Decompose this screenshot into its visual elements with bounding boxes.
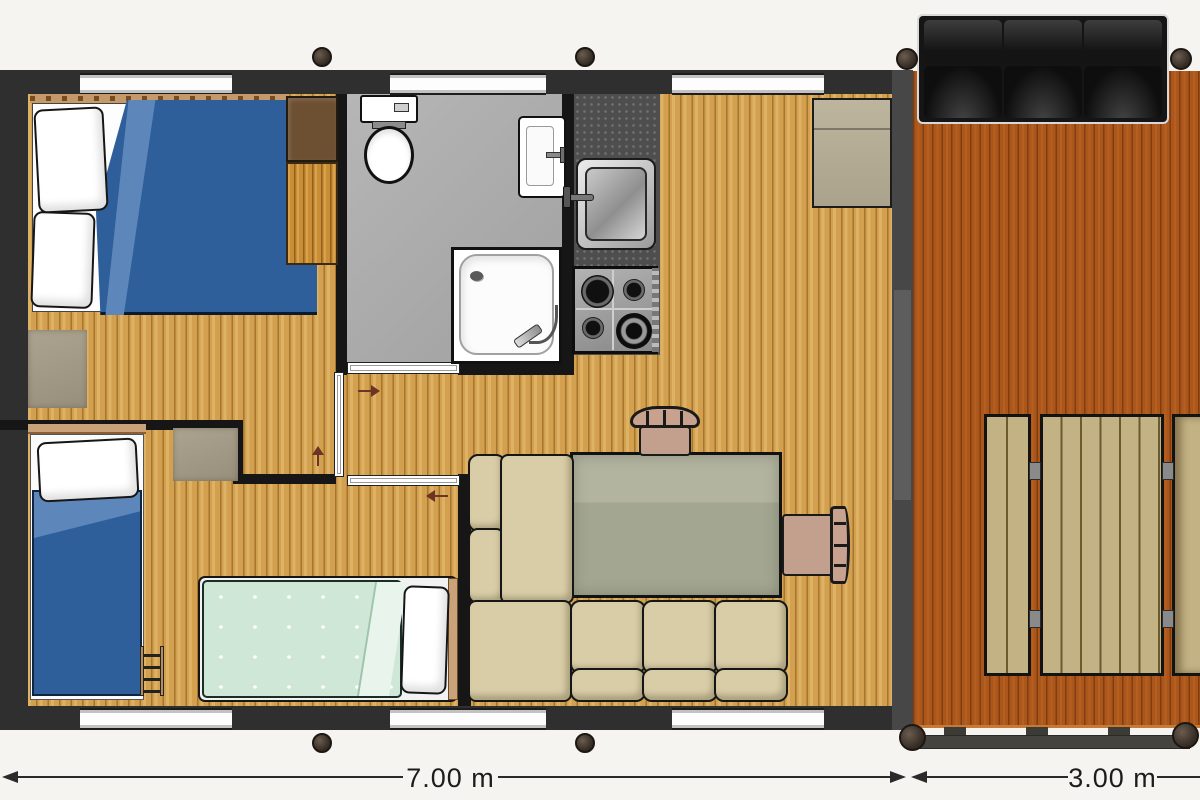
wall-left: [0, 70, 28, 730]
bathroom-wall-bottom: [458, 363, 574, 375]
bedside-rug: [173, 428, 238, 481]
single-bed: [28, 424, 146, 702]
floorplan-canvas: 7.00 m 3.00 m: [0, 0, 1200, 800]
picnic-bench: [984, 414, 1031, 676]
door-arrow-right-icon: [358, 385, 380, 397]
ladder: [140, 646, 164, 696]
wardrobe: [286, 96, 338, 162]
pillow: [30, 211, 95, 309]
burner: [623, 279, 645, 301]
sliding-door-bedroom1: [334, 372, 344, 477]
burner: [582, 317, 604, 339]
toilet: [360, 95, 422, 187]
dimension-label: 7.00 m: [403, 763, 498, 794]
vent-knob: [575, 733, 595, 753]
window: [80, 708, 232, 730]
pillow: [400, 585, 450, 695]
door-arrow-up-icon: [312, 446, 324, 466]
cabinet: [812, 98, 892, 208]
dining-table: [570, 452, 782, 598]
terrace-sofa: [917, 14, 1169, 124]
terrace-door: [894, 290, 911, 500]
chair: [782, 506, 852, 584]
duvet: [96, 100, 317, 315]
shower: [451, 247, 562, 364]
shelf-unit: [286, 162, 338, 265]
window: [390, 708, 546, 730]
chair: [630, 406, 704, 458]
window: [672, 708, 824, 730]
picnic-bracket: [1162, 610, 1174, 628]
single-bed-mint: [198, 576, 458, 702]
pillow: [33, 106, 108, 214]
gas-hob: [572, 266, 658, 354]
vent-knob: [312, 47, 332, 67]
window: [390, 73, 546, 95]
sliding-door-bedroom2: [347, 475, 460, 486]
picnic-bracket: [1029, 610, 1041, 628]
window: [672, 73, 824, 95]
vent-knob: [312, 733, 332, 753]
sliding-door-bathroom: [347, 362, 460, 374]
kitchen-sink: [576, 158, 656, 250]
vent-knob: [575, 47, 595, 67]
burner: [616, 313, 652, 349]
door-arrow-left-icon: [426, 490, 448, 502]
burner: [581, 275, 614, 308]
picnic-bracket: [1162, 462, 1174, 480]
picnic-table: [1040, 414, 1164, 676]
deck-post-knob: [896, 48, 918, 70]
picnic-bench: [1172, 414, 1200, 676]
window: [80, 73, 232, 95]
picnic-bracket: [1029, 462, 1041, 480]
dimension-label: 3.00 m: [1068, 763, 1157, 794]
bedside-rug: [28, 330, 87, 408]
deck-post-knob: [1170, 48, 1192, 70]
bedroom-wall-b: [233, 474, 336, 484]
pillow: [36, 437, 139, 502]
double-bed: [30, 94, 287, 312]
duvet: [202, 580, 402, 698]
bathroom-sink: [518, 116, 566, 198]
duvet: [32, 490, 142, 696]
